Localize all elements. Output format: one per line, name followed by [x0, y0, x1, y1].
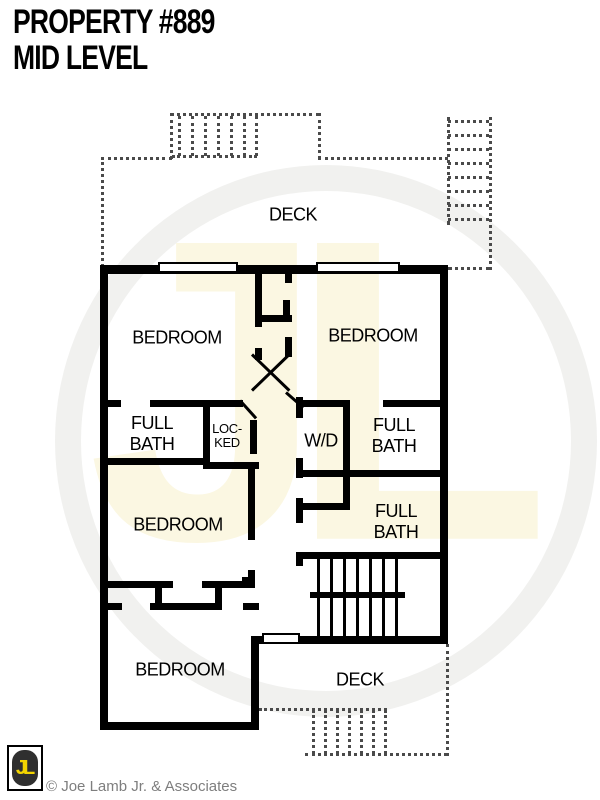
stair-tread [343, 559, 346, 636]
room-label-locked: LOC-KED [212, 422, 242, 450]
stair-tread [448, 134, 489, 137]
window [316, 262, 400, 273]
stair-tread [330, 559, 333, 636]
interior-wall [108, 581, 173, 588]
stair-tread [395, 559, 398, 636]
room-label-line: FULL [373, 415, 415, 435]
stair-tread [191, 116, 194, 156]
interior-wall [285, 272, 292, 283]
room-label-deck-bottom: DECK [336, 670, 384, 691]
exterior-wall [251, 638, 259, 730]
room-label-wd: W/D [304, 431, 338, 452]
stair-tread [448, 148, 489, 151]
stair-tread [312, 710, 315, 754]
closet-wall [150, 603, 219, 610]
stair-tread [448, 204, 489, 207]
interior-wall [343, 400, 350, 510]
stair-tread [360, 710, 363, 754]
room-label-line: LOC- [212, 421, 242, 436]
room-label-line: KED [214, 435, 240, 450]
copyright-text: © Joe Lamb Jr. & Associates [46, 778, 237, 795]
stair-tread [230, 116, 233, 156]
logo-monogram: JL [16, 758, 34, 778]
stair-rail [296, 552, 448, 559]
room-label-line: FULL [375, 501, 417, 521]
exterior-wall [100, 722, 259, 730]
page-title: PROPERTY #889 MID LEVEL [13, 4, 215, 76]
door-swing [239, 399, 257, 419]
deck-stairs-edge [170, 113, 173, 159]
stair-tread [448, 120, 489, 123]
stair-tread [178, 116, 181, 156]
room-label-bedroom: BEDROOM [132, 328, 222, 349]
interior-wall [150, 400, 207, 407]
deck-door [262, 633, 300, 644]
deck-edge [318, 157, 448, 160]
stair-tread [384, 710, 387, 754]
interior-wall [300, 470, 448, 477]
closet-wall [243, 603, 259, 610]
interior-wall [283, 300, 290, 322]
deck-edge [101, 157, 104, 267]
floorplan-page: JL PROPERTY #889 MID LEVEL DEC [0, 0, 600, 800]
stair-rail [296, 552, 303, 566]
stair-tread [448, 176, 489, 179]
room-label-deck-top: DECK [269, 205, 317, 226]
room-label-full-bath: FULLBATH [130, 413, 175, 455]
room-label-line: BATH [372, 436, 417, 456]
floor-plan: DECK DECK [0, 0, 600, 800]
deck-edge [259, 708, 387, 711]
interior-wall [298, 503, 345, 510]
deck-edge [446, 644, 449, 756]
closet-wall [108, 603, 122, 610]
interior-wall [203, 400, 210, 465]
interior-wall [296, 400, 350, 407]
level-name: MID LEVEL [13, 40, 215, 76]
room-label-line: BATH [374, 522, 419, 542]
interior-wall [202, 581, 255, 588]
logo-stadium: JL [12, 750, 38, 786]
room-label-full-bath: FULLBATH [372, 415, 417, 457]
stair-tread [372, 710, 375, 754]
room-label-bedroom: BEDROOM [133, 515, 223, 536]
deck-stairs-edge [318, 113, 321, 159]
stair-tread [448, 190, 489, 193]
stair-tread [255, 116, 258, 156]
room-label-line: FULL [131, 413, 173, 433]
stair-tread [369, 559, 372, 636]
stair-tread [243, 116, 246, 156]
deck-edge [101, 157, 172, 160]
stair-tread [356, 559, 359, 636]
exterior-wall [100, 265, 108, 730]
interior-wall [296, 498, 303, 523]
interior-wall [248, 467, 255, 540]
stair-tread [382, 559, 385, 636]
stair-tread [348, 710, 351, 754]
room-label-full-bath: FULLBATH [374, 501, 419, 543]
interior-wall [100, 400, 121, 407]
room-label-bedroom: BEDROOM [135, 660, 225, 681]
interior-wall [250, 420, 257, 454]
window [158, 262, 238, 273]
stair-tread [448, 218, 489, 221]
stair-tread [217, 116, 220, 156]
company-logo: JL [7, 745, 43, 791]
stair-tread [448, 162, 489, 165]
property-number: PROPERTY #889 [13, 4, 215, 40]
stair-tread [317, 559, 320, 636]
stair-tread [204, 116, 207, 156]
stair-tread [324, 710, 327, 754]
room-label-bedroom: BEDROOM [328, 326, 418, 347]
interior-wall [100, 458, 207, 465]
interior-wall [383, 400, 440, 407]
exterior-stair-rail [489, 117, 492, 270]
stair-tread [336, 710, 339, 754]
deck-edge [448, 267, 490, 270]
exterior-wall [440, 265, 448, 644]
room-label-line: BATH [130, 434, 175, 454]
